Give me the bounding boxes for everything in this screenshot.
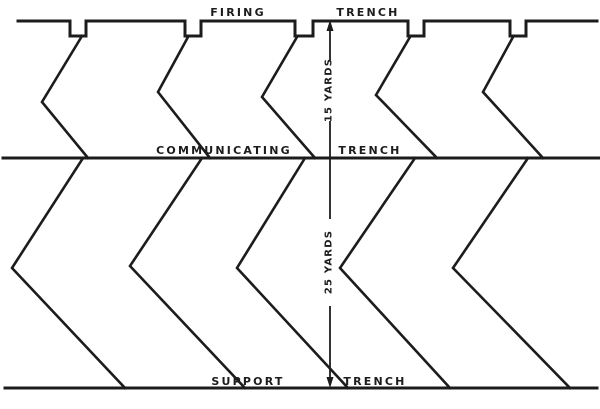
- lower-communication-zigzags: [12, 158, 570, 388]
- support-trench-label-word2: TRENCH: [343, 375, 406, 388]
- upper-zigzag-2: [158, 37, 210, 158]
- support-trench-label-word1: SUPPORT: [211, 375, 284, 388]
- distance-label-15-yards: 15 YARDS: [324, 58, 335, 122]
- firing-trench-line: [18, 21, 597, 36]
- communicating-trench-label-word2: TRENCH: [338, 144, 401, 157]
- firing-trench-label-word2: TRENCH: [336, 6, 399, 19]
- lower-zigzag-2: [130, 158, 245, 388]
- firing-trench-label-word1: FIRING: [210, 6, 266, 19]
- trench-diagram: FIRING TRENCH COMMUNICATING TRENCH SUPPO…: [0, 0, 600, 409]
- communicating-trench-label-word1: COMMUNICATING: [156, 144, 292, 157]
- upper-communication-zigzags: [42, 36, 543, 158]
- trench-diagram-page: FIRING TRENCH COMMUNICATING TRENCH SUPPO…: [0, 0, 600, 409]
- arrow-down-icon: [327, 377, 334, 388]
- upper-zigzag-1: [42, 36, 88, 158]
- lower-zigzag-5: [453, 158, 570, 388]
- upper-zigzag-4: [376, 37, 437, 158]
- upper-zigzag-3: [262, 37, 315, 158]
- lower-zigzag-4: [340, 158, 450, 388]
- upper-zigzag-5: [483, 37, 543, 158]
- distance-label-25-yards: 25 YARDS: [324, 230, 335, 294]
- lower-zigzag-1: [12, 158, 125, 388]
